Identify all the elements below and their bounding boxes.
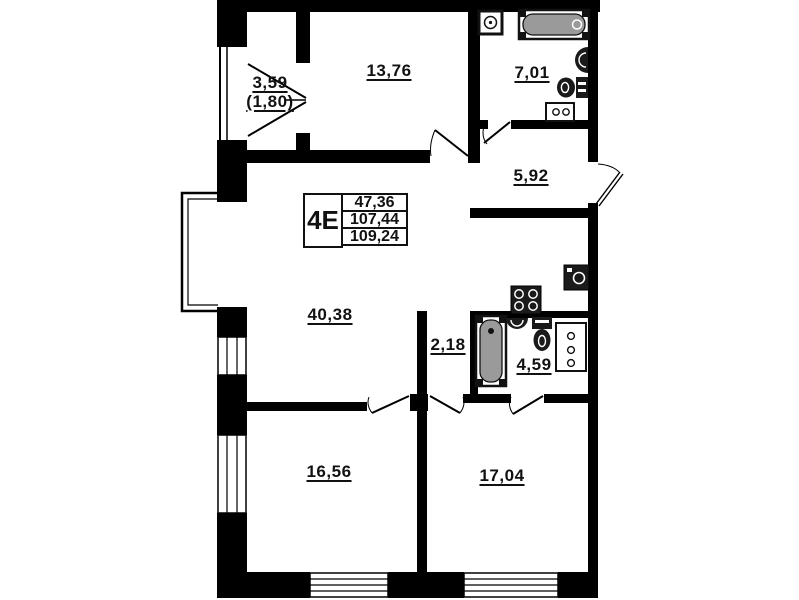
door-icon	[509, 396, 543, 414]
wall	[463, 394, 511, 403]
unit-info-box: 4E 47,36 107,44 109,24	[303, 193, 408, 248]
washbasin-icon	[506, 318, 528, 329]
corner-sink-icon	[479, 11, 502, 34]
room-area-label-balcony: 3,59 (1,80)	[246, 73, 293, 111]
wall	[247, 150, 430, 163]
room-area-label-40-38: 40,38	[307, 305, 352, 325]
room-area-label-5-92: 5,92	[513, 166, 548, 186]
unit-type-label: 4E	[303, 193, 343, 248]
wall	[217, 0, 247, 47]
room-area-label-4-59: 4,59	[516, 355, 551, 375]
wall	[217, 513, 247, 572]
balcony-window-icon	[220, 47, 227, 140]
washing-machine-icon	[546, 103, 574, 121]
unit-area-total-with-balcony: 109,24	[341, 227, 408, 246]
wall	[470, 208, 598, 218]
door-icon	[431, 130, 469, 156]
window-icon	[310, 573, 388, 597]
wall	[588, 203, 598, 572]
stove-icon	[511, 286, 541, 314]
wall	[544, 394, 590, 403]
wall	[217, 572, 310, 598]
wall	[296, 12, 310, 63]
wall	[558, 572, 598, 598]
room-area-label-16-56: 16,56	[306, 462, 351, 482]
door-icon	[430, 396, 464, 413]
cabinet-icon	[556, 323, 586, 371]
unit-area-rows: 47,36 107,44 109,24	[341, 193, 408, 248]
window-icon	[218, 435, 246, 513]
washbasin-icon	[575, 47, 588, 73]
room-area-label-13-76: 13,76	[366, 61, 411, 81]
door-icon	[368, 396, 409, 413]
floor-plan: 3,59 (1,80) 13,76 7,01 5,92 40,38 2,18 4…	[0, 0, 799, 600]
wall	[410, 394, 428, 411]
room-area-label-2-18: 2,18	[430, 335, 465, 355]
bay-outline	[182, 193, 218, 311]
wall	[217, 307, 247, 337]
toilet-icon	[532, 317, 552, 351]
wall	[417, 311, 427, 572]
wall	[468, 120, 488, 129]
wall	[247, 402, 367, 411]
room-area-label-17-04: 17,04	[479, 466, 524, 486]
washing-machine-icon	[564, 265, 589, 290]
wall	[217, 140, 247, 202]
toilet-icon	[557, 77, 588, 98]
room-area-label-7-01: 7,01	[514, 63, 549, 83]
wall	[388, 572, 464, 598]
window-icon	[218, 337, 246, 375]
entrance-door-icon	[596, 164, 623, 206]
floor-plan-drawing	[0, 0, 799, 600]
window-icon	[464, 573, 558, 597]
balcony-area-value: 3,59	[246, 73, 293, 92]
bathtub-icon	[476, 316, 506, 386]
balcony-area-reduced-value: (1,80)	[246, 92, 293, 111]
wall	[217, 375, 247, 435]
bathtub-icon	[519, 10, 589, 39]
